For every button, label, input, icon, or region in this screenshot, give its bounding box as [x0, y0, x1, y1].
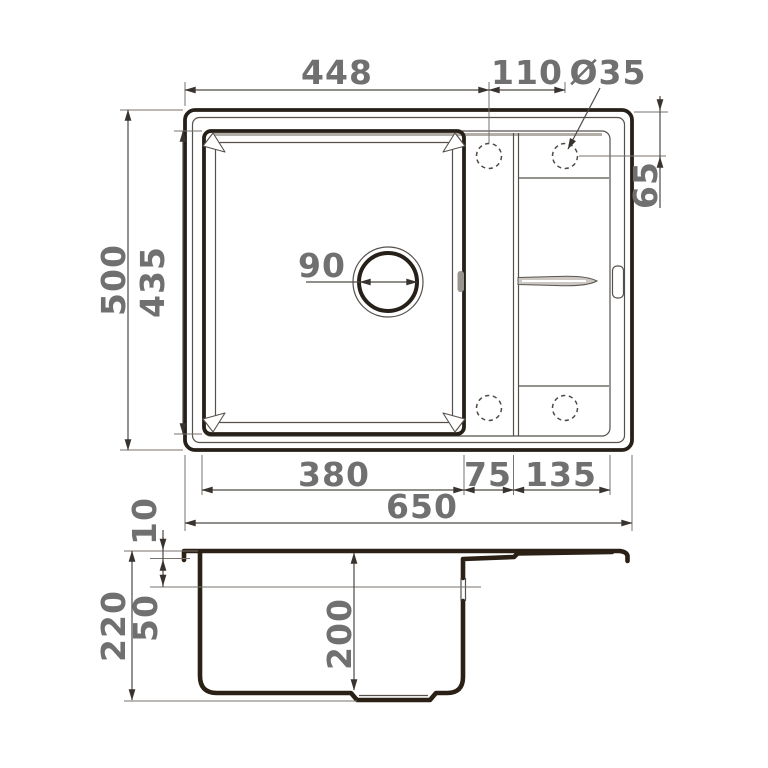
- sink-dimension-drawing: 448 110 Ø35 500 435 65 90 380 75 135 650…: [0, 0, 768, 768]
- ext-435: [174, 131, 202, 434]
- dim-label-tap-diameter: Ø35: [570, 53, 647, 92]
- top-view: [185, 110, 632, 450]
- dim-label-135: 135: [525, 455, 597, 494]
- technical-drawing-canvas: 448 110 Ø35 500 435 65 90 380 75 135 650…: [0, 0, 768, 768]
- dim-label-10: 10: [125, 497, 164, 545]
- dim-label-448: 448: [301, 53, 373, 92]
- dimensions: 448 110 Ø35 500 435 65 90 380 75 135 650…: [94, 53, 668, 701]
- dim-label-90: 90: [298, 246, 346, 285]
- section-view: [184, 551, 628, 700]
- tap-hole-back-right: [553, 144, 578, 169]
- tap-hole-front-left: [477, 396, 502, 421]
- dim-label-435: 435: [133, 246, 172, 318]
- dim-label-650: 650: [386, 487, 458, 526]
- leader-tap-diameter: [568, 88, 600, 149]
- dim-label-380: 380: [298, 455, 370, 494]
- tap-hole-back-left: [477, 144, 502, 169]
- dim-label-65: 65: [626, 161, 665, 209]
- dim-label-500: 500: [94, 244, 133, 316]
- dim-label-220: 220: [94, 590, 133, 662]
- bowl-overflow-mark: [458, 271, 465, 292]
- section-wing-underside: [463, 552, 612, 578]
- dim-label-110: 110: [491, 53, 563, 92]
- dim-label-75: 75: [464, 455, 512, 494]
- overflow-slot: [613, 266, 624, 298]
- dim-label-200: 200: [320, 598, 359, 670]
- tap-hole-front-right: [553, 396, 578, 421]
- section-wall-joint: [461, 578, 466, 601]
